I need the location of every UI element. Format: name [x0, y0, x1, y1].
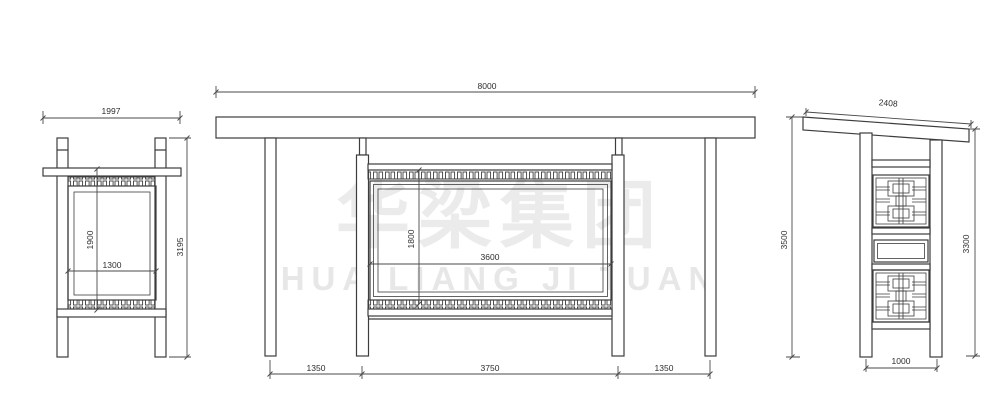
front-view-post-inner-left-neck: [360, 138, 367, 155]
front-view-post-outer-left: [265, 138, 276, 356]
left-view-dentil-strip-bottom: [68, 300, 155, 309]
dim-label: 3195: [175, 237, 185, 256]
right-view-post-left: [860, 133, 872, 357]
left-view-top-rail: [43, 168, 181, 176]
right-view-rail-3: [872, 264, 930, 270]
dimension-right-base-width: 1000: [864, 356, 940, 372]
cad-drawing-canvas: 华梁集团 HUA LIANG JI TUAN 1997 1900 130: [0, 0, 1000, 413]
dimension-front-roof-width: 8000: [214, 81, 758, 98]
right-view-roof-slab: [803, 117, 969, 142]
dim-label: 1350: [307, 363, 326, 373]
dim-label: 3600: [481, 252, 500, 262]
right-view-lattice-panel-top: [873, 175, 929, 227]
left-side-elevation-view: 1997 1900 1300 3195: [41, 106, 192, 360]
dimension-left-panel-width: 1300: [66, 260, 159, 274]
right-view-middle-panel-inner: [878, 244, 925, 259]
left-view-bottom-rail: [57, 309, 166, 317]
front-view-post-outer-right: [705, 138, 716, 356]
front-view-bottom-rail: [368, 309, 612, 316]
dim-label: 1997: [102, 106, 121, 116]
left-view-dentil-strip-top: [68, 177, 155, 186]
front-view-roof-beam: [216, 117, 755, 138]
dimension-right-height-left: 3500: [779, 115, 803, 360]
dimension-left-panel-height: 1900: [85, 167, 100, 313]
front-view-post-inner-left: [357, 155, 369, 356]
front-view-dentil-strip-top: [368, 170, 612, 179]
right-view-post-right: [930, 140, 942, 357]
dim-label: 3750: [481, 363, 500, 373]
right-view-rail-4: [872, 322, 930, 329]
left-view-panel-outer-frame: [68, 186, 156, 300]
dimension-left-overall-width: 1997: [41, 106, 183, 124]
dim-label: 3300: [961, 234, 971, 253]
dim-label: 1000: [892, 356, 911, 366]
right-side-elevation-view: 2408 3500 3300 1000: [779, 97, 980, 372]
dimension-front-bays: 1350 3750 1350: [268, 360, 713, 379]
right-view-rail-1: [872, 160, 930, 167]
front-view-top-rail: [368, 164, 612, 170]
front-view-post-inner-right-neck: [616, 138, 623, 155]
dim-label: 1300: [103, 260, 122, 270]
dim-label: 1350: [655, 363, 674, 373]
dim-label: 8000: [478, 81, 497, 91]
front-view-dentil-strip-bottom: [368, 300, 612, 309]
dim-label: 1800: [406, 229, 416, 248]
dimension-right-height-right: 3300: [961, 127, 980, 359]
dim-label: 1900: [85, 230, 95, 249]
front-view-post-inner-right: [612, 155, 624, 356]
dim-label: 3500: [779, 230, 789, 249]
watermark-latin: HUA LIANG JI TUAN: [281, 260, 720, 297]
dim-label: 2408: [878, 97, 898, 108]
right-view-rail-2: [872, 228, 930, 234]
watermark: 华梁集团 HUA LIANG JI TUAN: [281, 174, 720, 297]
technical-drawing-page: 华梁集团 HUA LIANG JI TUAN 1997 1900 130: [0, 0, 1000, 413]
right-view-lattice-panel-bottom: [873, 270, 929, 322]
